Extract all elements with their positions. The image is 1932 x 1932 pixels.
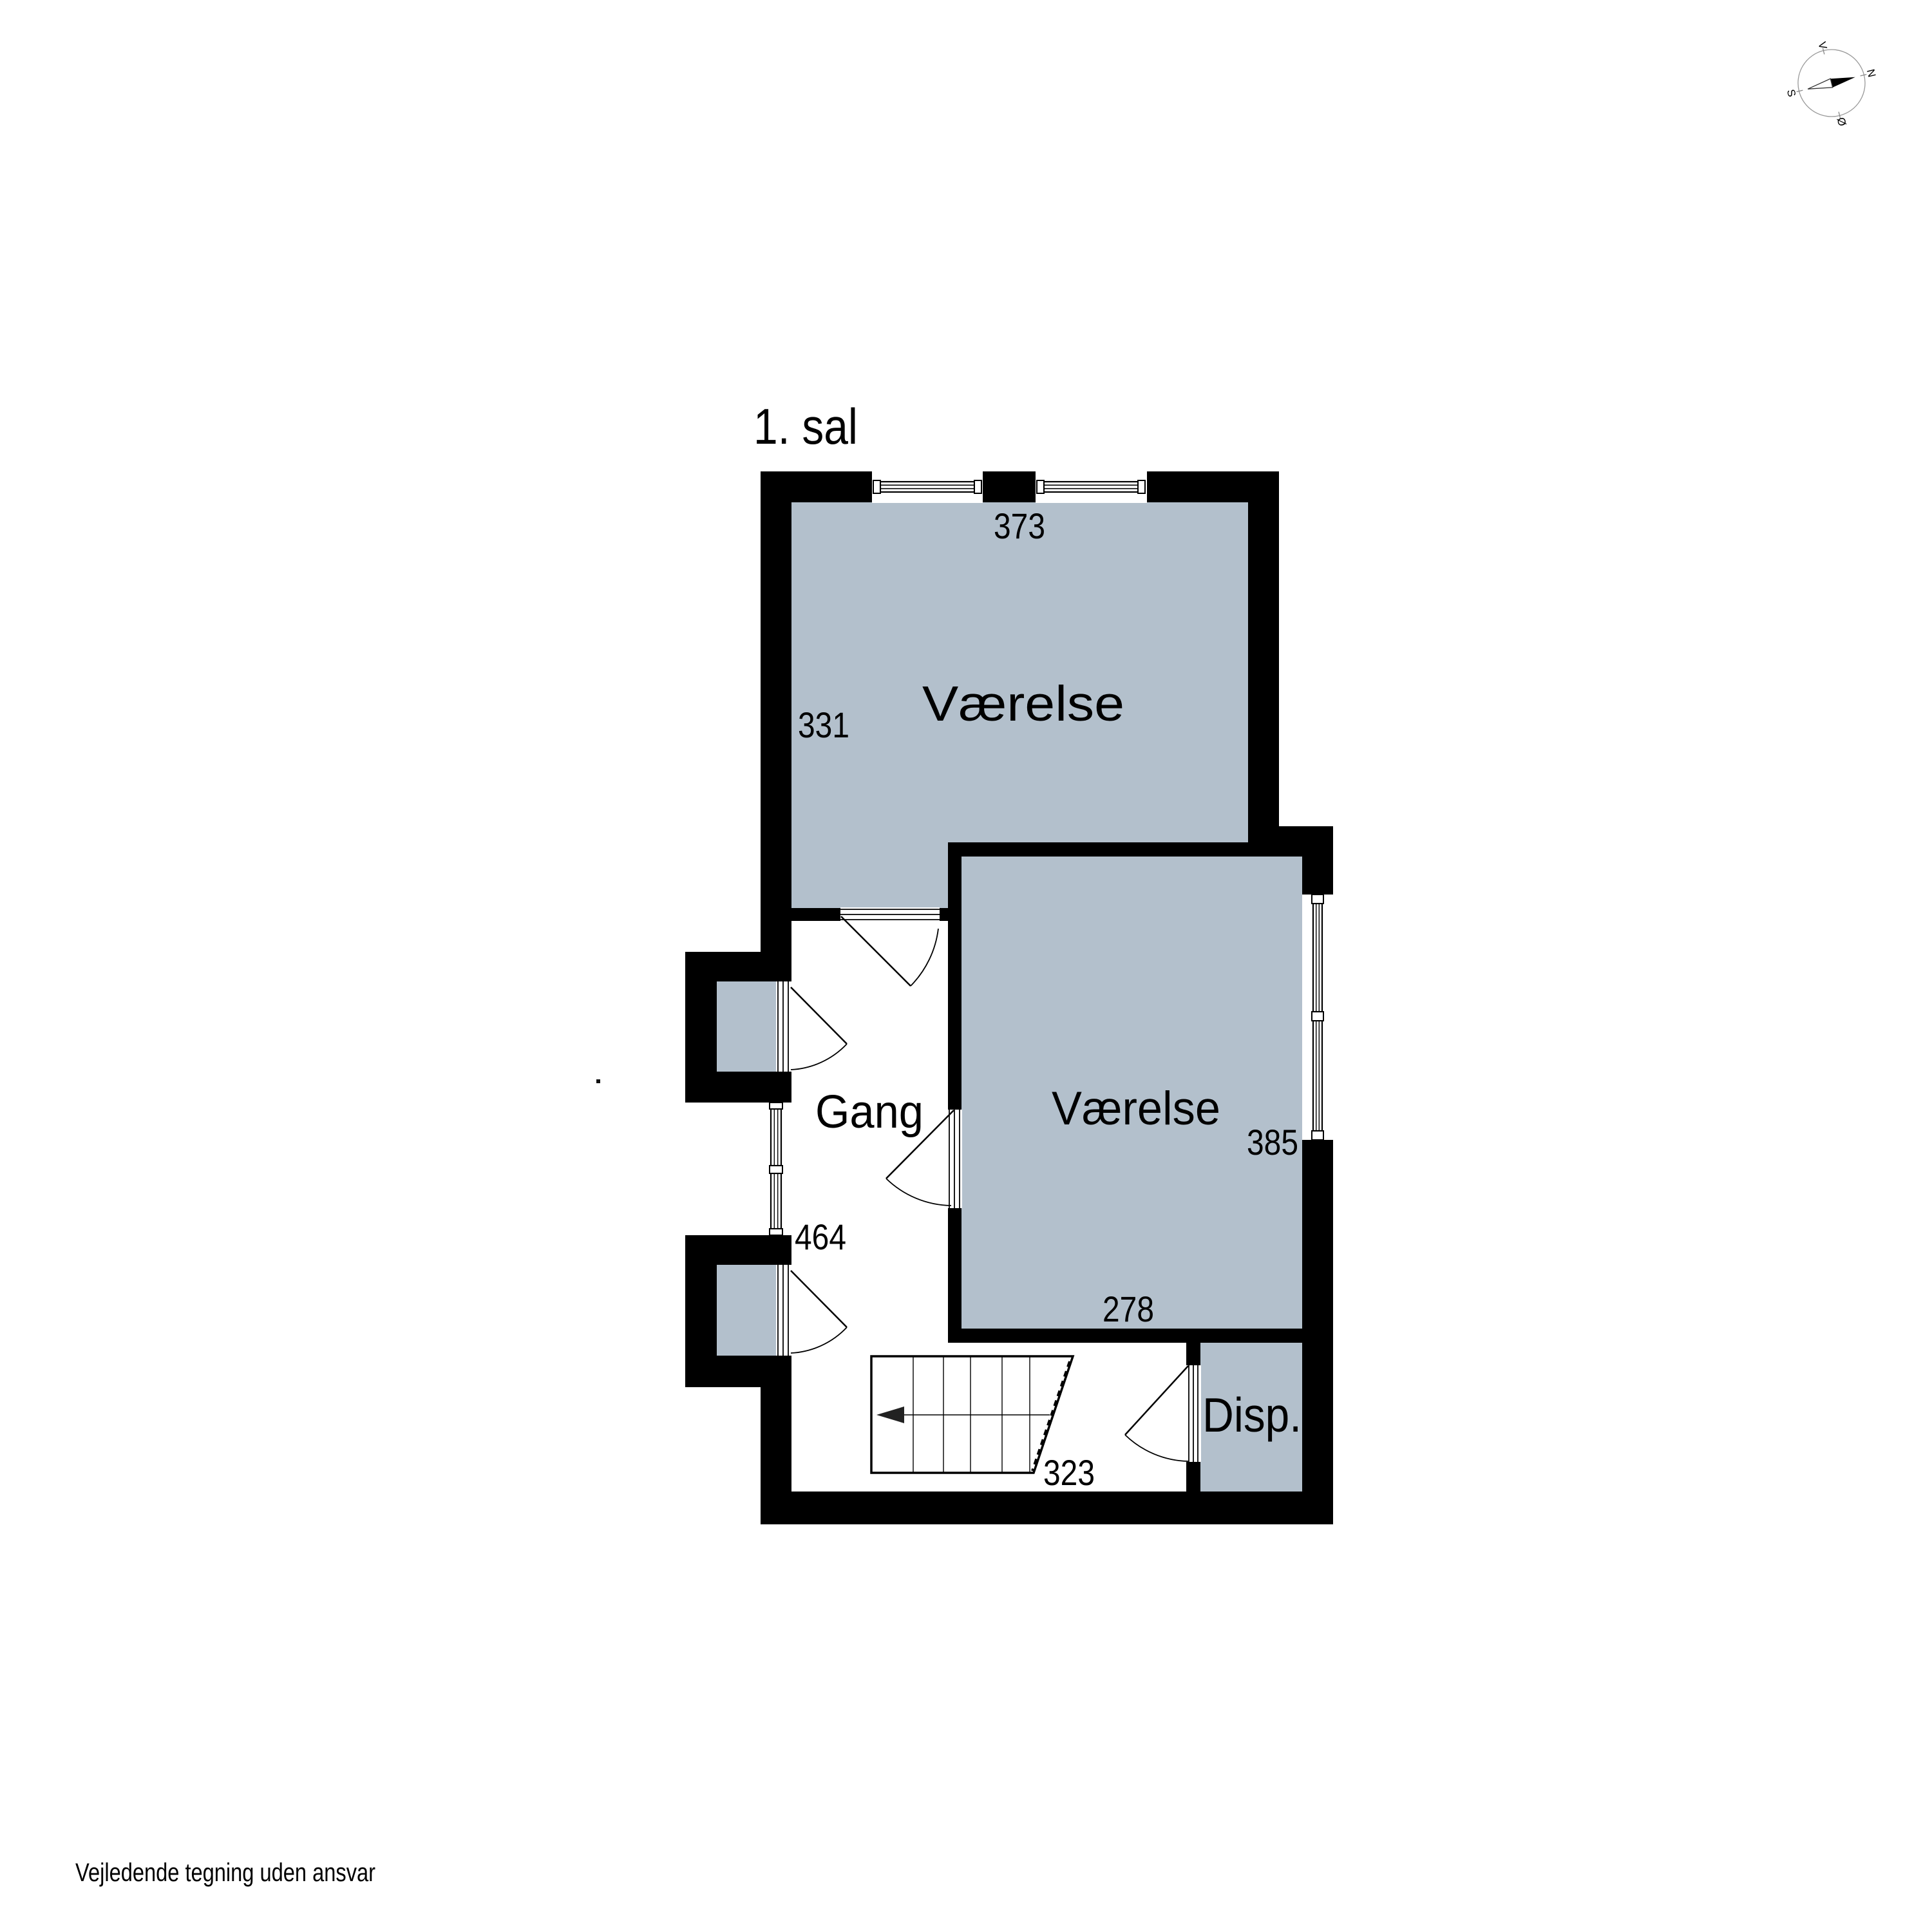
svg-text:Værelse: Værelse <box>922 676 1124 732</box>
svg-text:1. sal: 1. sal <box>753 398 858 455</box>
svg-text:Værelse: Værelse <box>1052 1083 1220 1135</box>
svg-text:Disp.: Disp. <box>1202 1388 1302 1442</box>
svg-text:464: 464 <box>795 1217 846 1257</box>
svg-text:Vejledende tegning uden ansvar: Vejledende tegning uden ansvar <box>75 1859 375 1887</box>
svg-text:Gang: Gang <box>815 1086 923 1138</box>
svg-text:373: 373 <box>994 506 1045 546</box>
svg-text:385: 385 <box>1247 1122 1298 1162</box>
svg-text:278: 278 <box>1103 1289 1154 1329</box>
svg-text:323: 323 <box>1043 1452 1095 1493</box>
svg-text:331: 331 <box>798 705 849 745</box>
